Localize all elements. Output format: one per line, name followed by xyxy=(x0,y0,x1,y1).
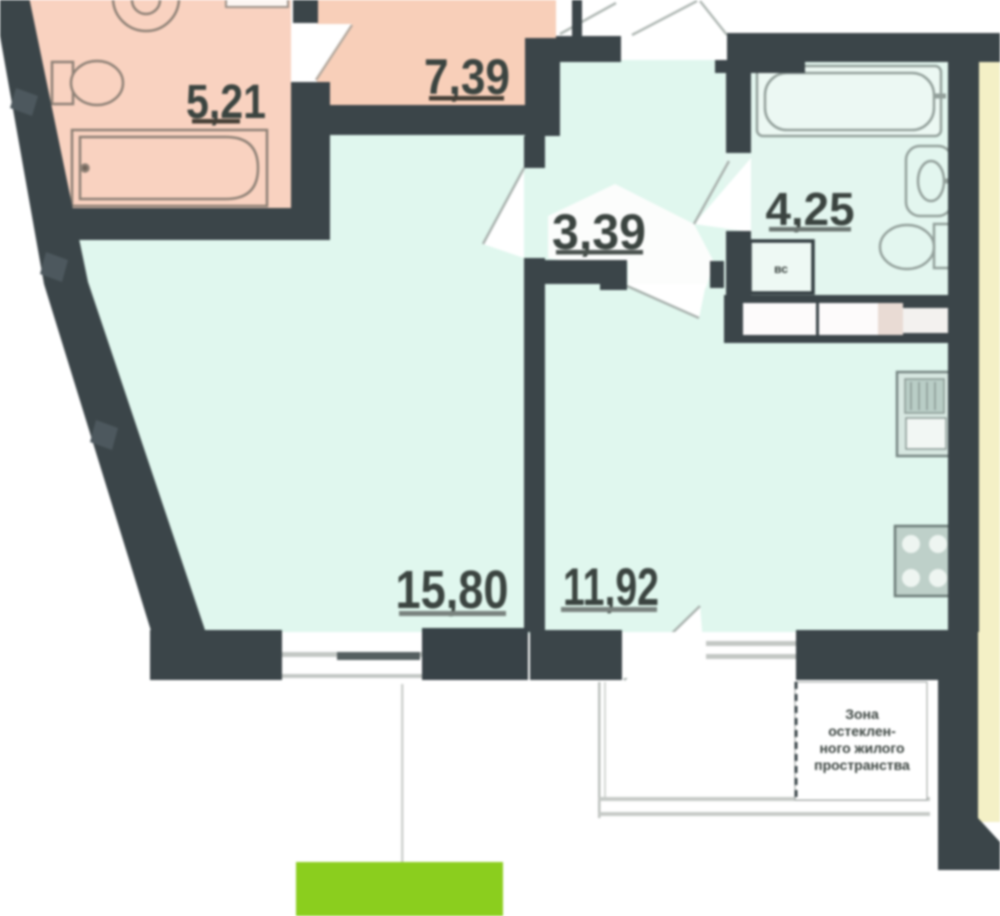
svg-text:вс: вс xyxy=(774,262,788,276)
svg-text:остеклен-: остеклен- xyxy=(828,723,896,739)
svg-text:ного жилого: ного жилого xyxy=(819,740,904,756)
svg-text:пространства: пространства xyxy=(814,757,910,773)
svg-text:Зона: Зона xyxy=(845,706,879,722)
